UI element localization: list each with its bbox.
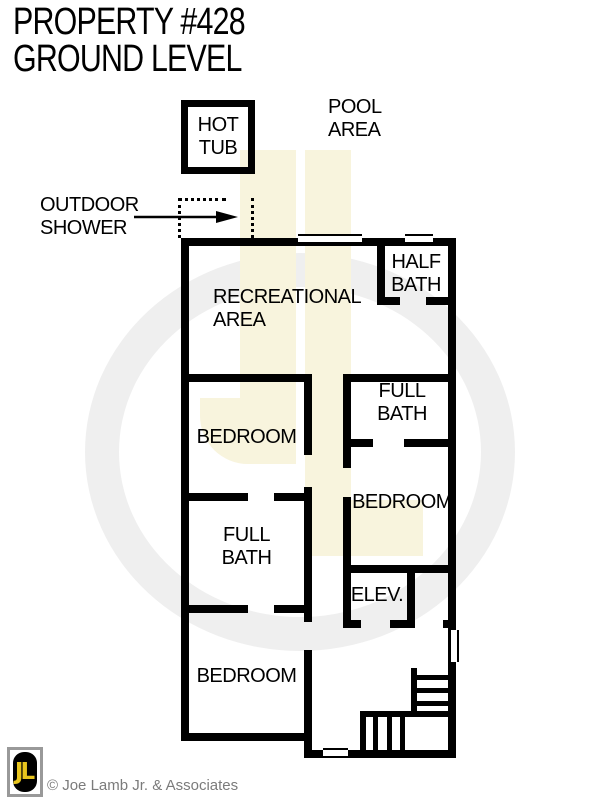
pool-area-label: POOL AREA — [328, 96, 382, 142]
hot-tub-label: HOT TUB — [198, 114, 239, 160]
wall-segment — [274, 493, 304, 501]
elevator-label: ELEV. — [344, 584, 410, 607]
shower-dashed-wall-top — [178, 198, 226, 201]
stairs-rail — [360, 711, 366, 751]
wall-segment — [343, 620, 361, 628]
window-marker — [449, 630, 459, 662]
bedroom-lower-label: BEDROOM — [190, 665, 303, 688]
outdoor-shower-label: OUTDOOR SHOWER — [40, 194, 139, 240]
wall-segment — [343, 497, 351, 627]
wall-segment — [304, 650, 312, 733]
hot-tub-outline: HOT TUB — [181, 100, 255, 174]
joe-lamb-logo: JL — [7, 747, 43, 797]
full-bath-right-label: FULL BATH — [352, 380, 452, 426]
wall-segment — [304, 487, 312, 622]
wall-segment — [404, 439, 448, 447]
wall-segment — [443, 620, 456, 628]
wall-segment — [343, 565, 456, 573]
window-marker — [405, 234, 433, 244]
stairs-tread — [417, 701, 448, 706]
recreational-area-label: RECREATIONAL AREA — [213, 286, 361, 332]
wall-segment — [377, 297, 400, 305]
arrow-icon — [134, 208, 240, 226]
stairs-tread — [400, 717, 405, 751]
stairs-tread — [387, 717, 392, 751]
wall-segment — [343, 439, 373, 447]
wall-segment — [274, 605, 304, 613]
wall-segment — [189, 374, 312, 382]
wall-segment — [390, 620, 415, 628]
wall-segment — [343, 374, 351, 468]
title-line-1: PROPERTY #428 — [13, 4, 245, 41]
wall-segment — [181, 238, 189, 741]
window-marker — [323, 748, 348, 758]
page-title: PROPERTY #428 GROUND LEVEL — [13, 4, 245, 78]
wall-segment — [189, 493, 248, 501]
copyright-text: © Joe Lamb Jr. & Associates — [47, 777, 238, 794]
stairs-tread — [417, 675, 448, 680]
window-marker — [298, 234, 362, 244]
wall-segment — [426, 297, 448, 305]
wall-segment — [181, 733, 312, 741]
bedroom-upper-label: BEDROOM — [190, 426, 303, 449]
logo-pill: JL — [13, 752, 37, 792]
shower-dashed-wall-right — [251, 198, 254, 238]
bedroom-middle-label: BEDROOM — [352, 491, 452, 514]
half-bath-label: HALF BATH — [378, 251, 454, 297]
wall-segment — [304, 374, 312, 455]
logo-jl-text: JL — [15, 759, 35, 785]
stairs-tread — [417, 688, 448, 693]
full-bath-left-label: FULL BATH — [190, 524, 303, 570]
floor-plan-page: PROPERTY #428 GROUND LEVEL HOT TUB POOL … — [0, 0, 600, 800]
title-line-2: GROUND LEVEL — [13, 41, 245, 78]
stairs-tread — [373, 717, 378, 751]
wall-segment — [189, 605, 248, 613]
